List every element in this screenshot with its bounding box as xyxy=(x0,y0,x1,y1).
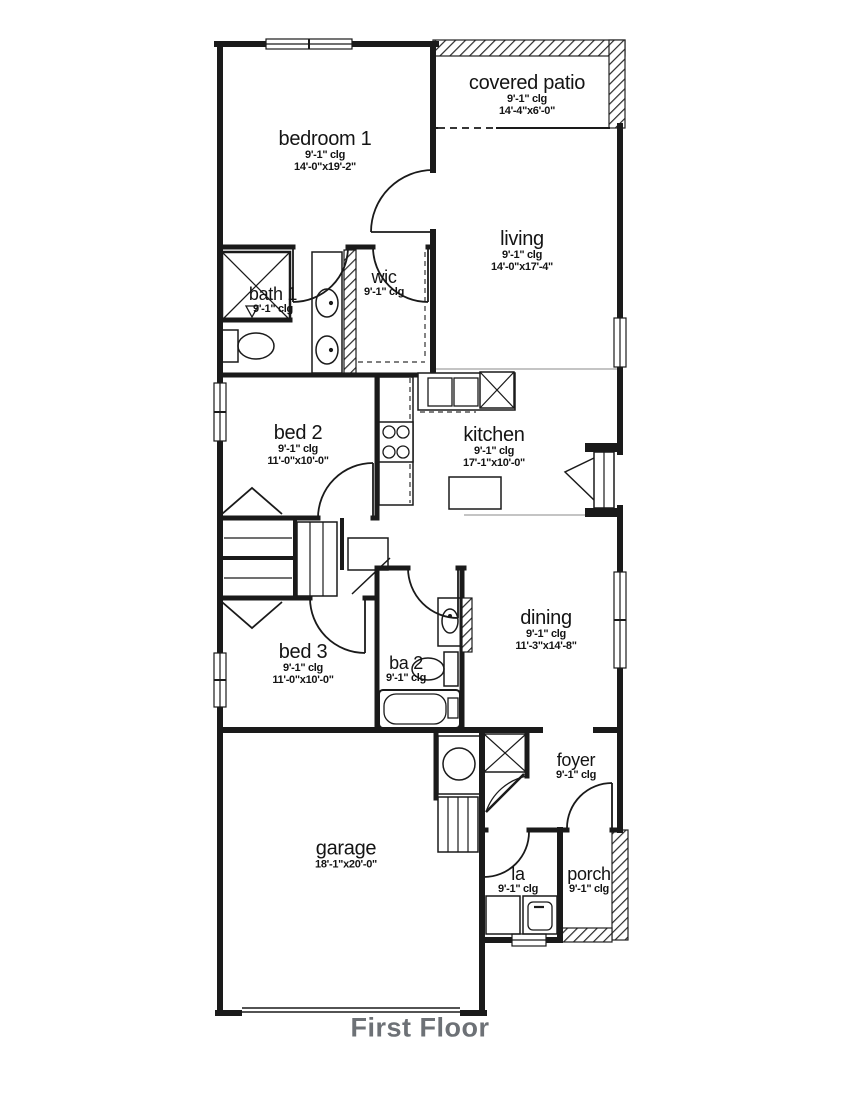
room-name: wic xyxy=(364,268,404,287)
room-name: covered patio xyxy=(469,73,585,94)
room-name: la xyxy=(498,865,538,884)
room-dims: 18'-1"x20'-0" xyxy=(315,860,377,872)
room-name: bath 1 xyxy=(249,285,297,304)
laundry-appliances xyxy=(486,896,557,934)
range xyxy=(379,422,413,462)
windows xyxy=(214,39,626,946)
floor-plan-drawing xyxy=(0,0,868,1101)
room-ceiling: 9'-1" clg xyxy=(272,663,333,675)
toilet xyxy=(222,330,274,362)
bath1-door xyxy=(293,247,348,302)
room-ceiling: 9'-1" clg xyxy=(386,673,426,685)
room-dims: 11'-0"x10'-0" xyxy=(272,675,333,687)
room-ceiling: 9'-1" clg xyxy=(556,770,596,782)
room-ceiling: 9'-1" clg xyxy=(279,150,372,162)
room-ceiling: 9'-1" clg xyxy=(515,629,576,641)
bed2-window xyxy=(214,383,226,441)
room-name: dining xyxy=(515,608,576,629)
room-name: bedroom 1 xyxy=(279,129,372,150)
room-name: bed 2 xyxy=(267,423,328,444)
garage-steps xyxy=(438,797,478,852)
room-name: foyer xyxy=(556,751,596,770)
living-window xyxy=(614,318,626,367)
vanity-wing-wall xyxy=(344,250,356,373)
washer xyxy=(523,896,557,934)
bed3-window xyxy=(214,653,226,707)
room-ceiling: 9'-1" clg xyxy=(498,884,538,896)
room-ceiling: 9'-1" clg xyxy=(491,250,553,262)
room-label-covered-patio: covered patio 9'-1" clg 14'-4"x6'-0" xyxy=(469,73,585,117)
room-name: bed 3 xyxy=(272,642,333,663)
double-vanity xyxy=(312,252,342,373)
room-dims: 14'-4"x6'-0" xyxy=(469,106,585,118)
room-name: ba 2 xyxy=(386,654,426,673)
linen-closet xyxy=(297,522,337,596)
room-label-wic: wic 9'-1" clg xyxy=(364,268,404,298)
room-dims: 11'-0"x10'-0" xyxy=(267,456,328,468)
room-label-bath1: bath 1 9'-1" clg xyxy=(249,285,297,315)
room-name: kitchen xyxy=(463,425,525,446)
room-label-bedroom1: bedroom 1 9'-1" clg 14'-0"x19'-2" xyxy=(279,129,372,173)
room-label-porch: porch 9'-1" clg xyxy=(567,865,611,895)
room-dims: 14'-0"x17'-4" xyxy=(491,262,553,274)
dryer xyxy=(486,896,520,934)
exterior-walls xyxy=(217,44,620,1013)
room-ceiling: 9'-1" clg xyxy=(364,287,404,299)
front-door xyxy=(567,783,612,828)
room-dims: 11'-3"x14'-8" xyxy=(515,641,576,653)
bed3-closet-bifold xyxy=(222,602,282,628)
kitchen-sink xyxy=(480,372,514,408)
room-ceiling: 9'-1" clg xyxy=(267,444,328,456)
room-label-foyer: foyer 9'-1" clg xyxy=(556,751,596,781)
ba2-wing-wall xyxy=(462,598,472,652)
room-dims: 17'-1"x10'-0" xyxy=(463,458,525,470)
room-name: porch xyxy=(567,865,611,884)
room-label-bed3: bed 3 9'-1" clg 11'-0"x10'-0" xyxy=(272,642,333,686)
room-label-kitchen: kitchen 9'-1" clg 17'-1"x10'-0" xyxy=(463,425,525,469)
room-label-la: la 9'-1" clg xyxy=(498,865,538,895)
bedroom1-door xyxy=(371,170,433,232)
dining-window xyxy=(614,572,626,668)
room-ceiling: 9'-1" clg xyxy=(463,446,525,458)
room-dims: 14'-0"x19'-2" xyxy=(279,162,372,174)
room-ceiling: 9'-1" clg xyxy=(249,304,297,316)
laundry-window xyxy=(512,934,546,946)
bathtub xyxy=(379,690,460,728)
room-name: living xyxy=(491,229,553,250)
floor-title: First Floor xyxy=(351,1013,490,1044)
bed2-closet-bifold xyxy=(222,488,282,514)
patio-wall xyxy=(433,123,610,133)
room-name: garage xyxy=(315,839,377,860)
kitchen-island xyxy=(449,477,501,509)
floor-plan-page: bedroom 1 9'-1" clg 14'-0"x19'-2" covere… xyxy=(0,0,868,1101)
room-label-garage: garage 18'-1"x20'-0" xyxy=(315,839,377,872)
water-heater xyxy=(438,736,480,794)
room-label-bed2: bed 2 9'-1" clg 11'-0"x10'-0" xyxy=(267,423,328,467)
room-label-ba2: ba 2 9'-1" clg xyxy=(386,654,426,684)
garage-entry-door xyxy=(486,774,527,812)
bed2-door xyxy=(318,463,373,518)
back-door xyxy=(565,443,620,517)
room-label-living: living 9'-1" clg 14'-0"x17'-4" xyxy=(491,229,553,273)
bedroom1-window xyxy=(266,39,352,49)
room-ceiling: 9'-1" clg xyxy=(567,884,611,896)
room-label-dining: dining 9'-1" clg 11'-3"x14'-8" xyxy=(515,608,576,652)
room-ceiling: 9'-1" clg xyxy=(469,94,585,106)
ba2-door xyxy=(408,568,458,618)
mechanical-closet xyxy=(484,734,526,772)
